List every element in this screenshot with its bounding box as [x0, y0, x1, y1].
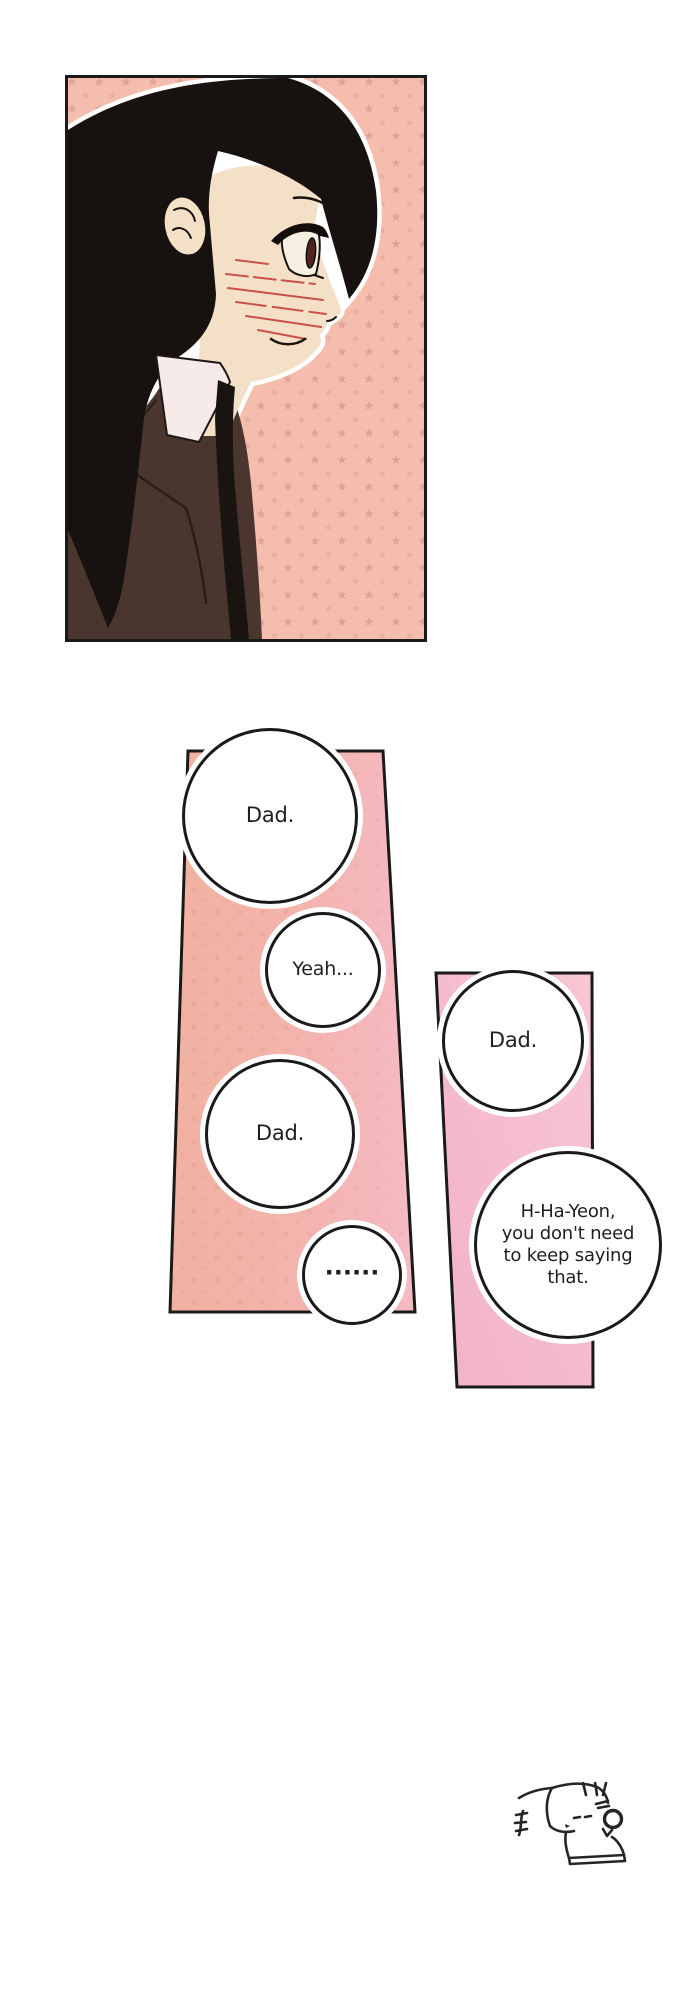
- speech-bubble-dad-3: Dad.: [442, 970, 584, 1112]
- speech-bubble-yeah: Yeah...: [265, 912, 381, 1028]
- bubble-text: Dad.: [256, 1121, 304, 1147]
- speech-bubble-dad-1: Dad.: [182, 728, 358, 904]
- bubble-text: Yeah...: [292, 958, 353, 981]
- bubble-text: ......: [325, 1253, 380, 1281]
- bubble-text-line: H-Ha-Yeon,: [521, 1201, 616, 1223]
- doodle-collar: [603, 1829, 612, 1836]
- speech-bubble-dad-2: Dad.: [205, 1059, 355, 1209]
- webtoon-page: Dad. Yeah... Dad. ...... Dad. H-Ha-Yeon,…: [0, 0, 690, 2000]
- bubble-text-line: that.: [547, 1267, 588, 1289]
- speech-bubble-silence: ......: [302, 1225, 402, 1325]
- doodle-body: [565, 1832, 624, 1858]
- bubble-text-line: to keep saying: [504, 1245, 633, 1267]
- doodle-ear: [605, 1811, 622, 1828]
- bubble-text: Dad.: [489, 1028, 537, 1054]
- chibi-doodle: [508, 1782, 643, 1874]
- doodle-head: [552, 1784, 608, 1803]
- bubble-text-line: you don't need: [502, 1223, 635, 1245]
- bubble-text: Dad.: [246, 803, 294, 829]
- doodle-mouth: [565, 1824, 570, 1828]
- panel-portrait: [65, 75, 427, 642]
- doodle-sketch: [515, 1782, 625, 1864]
- speech-bubble-hayeon: H-Ha-Yeon, you don't need to keep saying…: [474, 1151, 662, 1339]
- doodle-eyes: [574, 1817, 580, 1818]
